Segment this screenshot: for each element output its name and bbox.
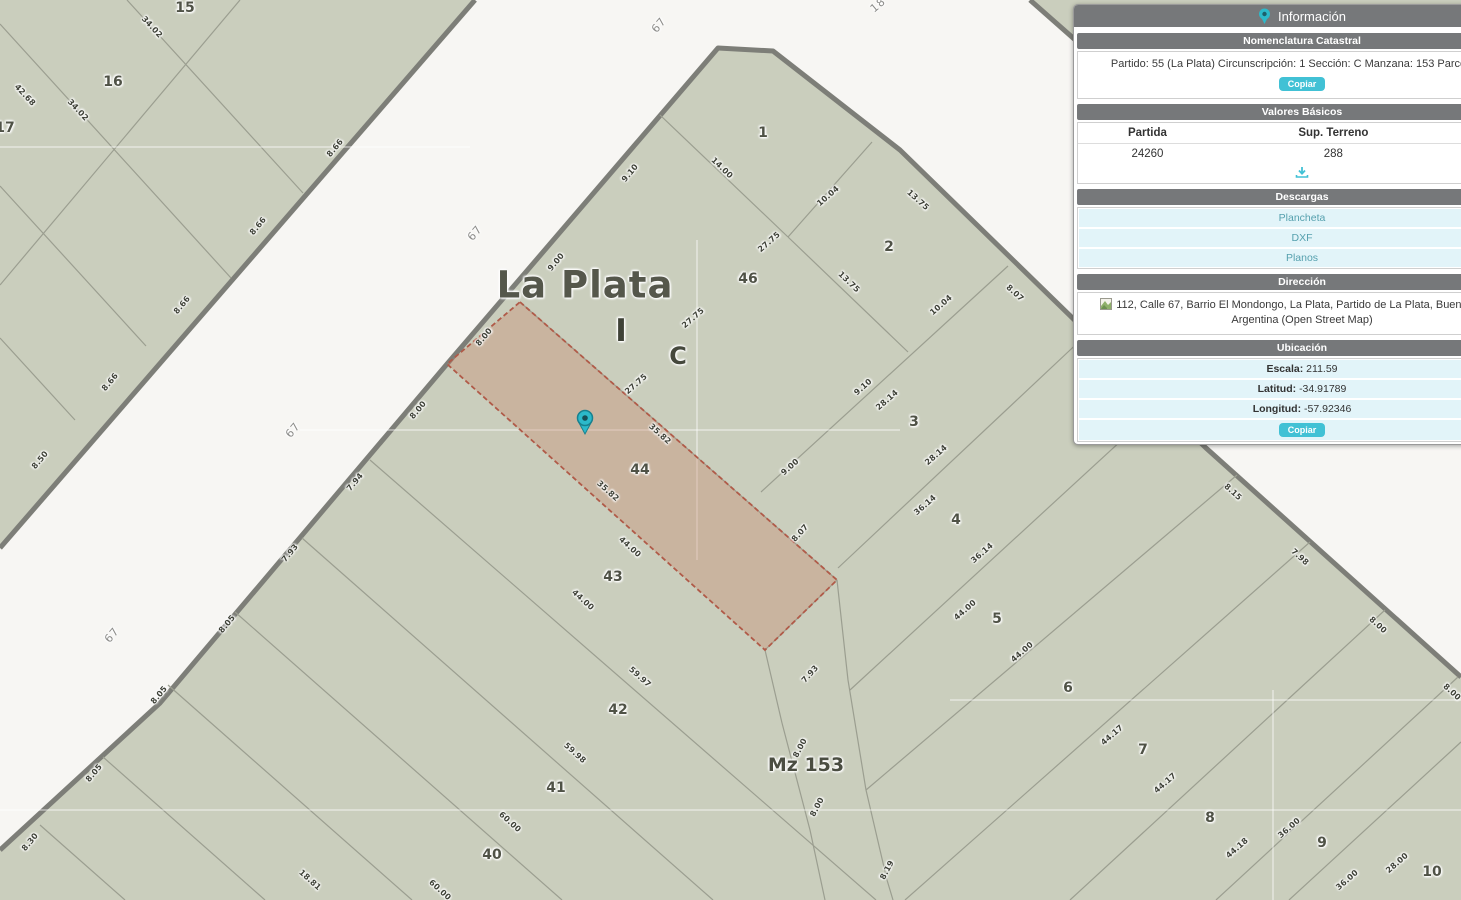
panel-title: Información [1278, 9, 1346, 24]
map-label-parcel: 5 [992, 611, 1002, 627]
pin-icon [1258, 8, 1271, 25]
valores-sup-terreno-value: 288 [1217, 144, 1450, 165]
section-ubicacion-header: Ubicación [1077, 340, 1461, 356]
download-icon[interactable] [1295, 166, 1309, 179]
map-label-parcel: 46 [738, 271, 757, 287]
map-label-parcel: 7 [1138, 742, 1148, 758]
longitud-row: Longitud: -57.92346 [1079, 400, 1461, 418]
map-label-parcel: 8 [1205, 810, 1215, 826]
map-label-parcel: 3 [909, 414, 919, 430]
download-plancheta-link[interactable]: Plancheta [1079, 209, 1461, 227]
map-label-parcel: 43 [603, 569, 622, 585]
section-ubicacion-body: Escala: 211.59 Latitud: -34.91789 Longit… [1077, 358, 1461, 442]
escala-label: Escala: [1266, 363, 1303, 375]
map-label-parcel: 44 [630, 462, 649, 478]
valores-table: Partida Sup. Terreno 24260 288 [1078, 123, 1461, 164]
map-label-parcel: 17 [0, 120, 15, 136]
section-descargas-body: Plancheta DXF Planos [1077, 207, 1461, 269]
longitud-label: Longitud: [1253, 403, 1301, 415]
cadastral-viewer: La PlataICMz 153676767671815161712463444… [0, 0, 1461, 900]
map-label-parcel: 4 [951, 512, 961, 528]
direccion-line1: 112, Calle 67, Barrio El Mondongo, La Pl… [1116, 299, 1461, 311]
section-valores-body: Partida Sup. Terreno 24260 288 [1077, 122, 1461, 184]
map-label-city: La Plata [497, 264, 674, 307]
table-row: 24260 288 [1078, 144, 1461, 165]
map-thumbnail-icon [1100, 298, 1112, 310]
valores-col-partida: Partida [1078, 123, 1217, 144]
map-label-parcel: 40 [482, 847, 501, 863]
info-panel: Información Nomenclatura Catastral Parti… [1073, 4, 1461, 445]
map-label-parcel: 2 [884, 239, 894, 255]
escala-row: Escala: 211.59 [1079, 360, 1461, 378]
nomenclatura-text: Partido: 55 (La Plata) Circunscripción: … [1078, 52, 1461, 71]
valores-partida-value: 24260 [1078, 144, 1217, 165]
map-label-parcel: 9 [1317, 835, 1327, 851]
map-label-parcel: 16 [103, 74, 122, 90]
copy-ubicacion-row: Copiar [1079, 420, 1461, 440]
map-label-parcel: 42 [608, 702, 627, 718]
map-label-sec1: I [615, 313, 627, 349]
direccion-line2: Argentina (Open Street Map) [1078, 313, 1461, 328]
latitud-row: Latitud: -34.91789 [1079, 380, 1461, 398]
copy-nomenclatura-button[interactable]: Copiar [1279, 77, 1326, 91]
section-valores-header: Valores Básicos [1077, 104, 1461, 120]
map-label-sec2: C [669, 342, 687, 370]
section-direccion-body: 112, Calle 67, Barrio El Mondongo, La Pl… [1077, 292, 1461, 335]
section-descargas-header: Descargas [1077, 189, 1461, 205]
map-label-parcel: 1 [758, 125, 768, 141]
copy-ubicacion-button[interactable]: Copiar [1279, 423, 1326, 437]
panel-header: Información [1074, 5, 1461, 27]
map-label-parcel: 41 [546, 780, 565, 796]
valores-col-sup-terreno: Sup. Terreno [1217, 123, 1450, 144]
longitud-value: -57.92346 [1304, 403, 1351, 415]
section-nomenclatura-header: Nomenclatura Catastral [1077, 33, 1461, 49]
download-dxf-link[interactable]: DXF [1079, 229, 1461, 247]
map-label-parcel: 10 [1422, 864, 1441, 880]
section-nomenclatura-body: Partido: 55 (La Plata) Circunscripción: … [1077, 51, 1461, 99]
map-label-mz: Mz 153 [768, 754, 844, 776]
map-label-parcel: 15 [175, 0, 194, 16]
latitud-value: -34.91789 [1299, 383, 1346, 395]
escala-value: 211.59 [1306, 363, 1337, 375]
section-direccion-header: Dirección [1077, 274, 1461, 290]
latitud-label: Latitud: [1258, 383, 1297, 395]
download-planos-link[interactable]: Planos [1079, 249, 1461, 267]
map-label-parcel: 6 [1063, 680, 1073, 696]
